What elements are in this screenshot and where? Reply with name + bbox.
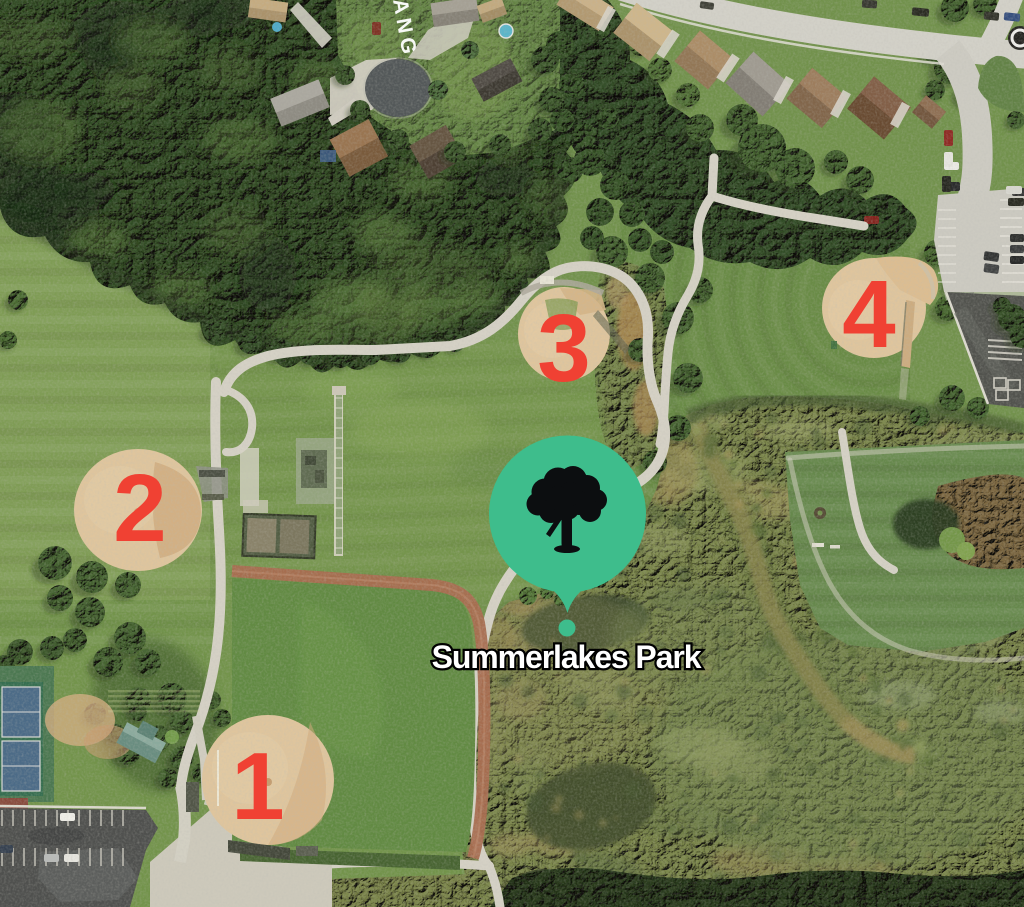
svg-text:3: 3 bbox=[537, 295, 590, 402]
svg-text:2: 2 bbox=[113, 455, 166, 562]
svg-text:1: 1 bbox=[231, 733, 284, 840]
svg-text:Summerlakes Park: Summerlakes Park bbox=[432, 639, 702, 675]
svg-text:4: 4 bbox=[842, 261, 895, 368]
